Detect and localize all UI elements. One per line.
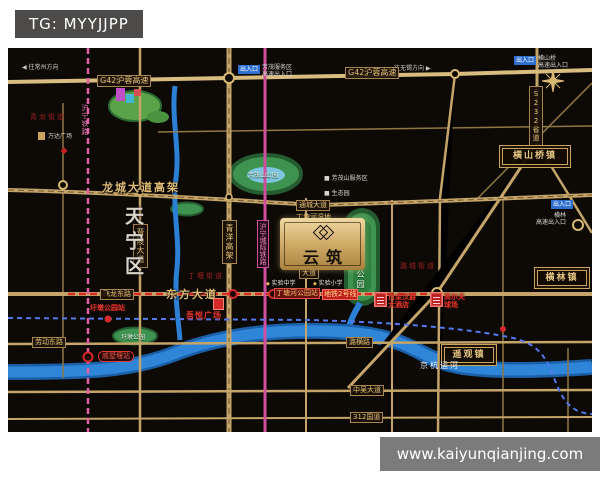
g312-label: 312国道 [350, 412, 383, 423]
poi-dot-east [500, 326, 506, 332]
junction-g42-east [451, 70, 459, 78]
wuyue-pin-icon [213, 298, 224, 310]
golf-icon [430, 292, 443, 307]
junction-west [59, 181, 67, 189]
project-name: 云筑 [280, 244, 365, 268]
wanda-plaza: 万达广场 [48, 133, 72, 140]
poi-farm: ■ 生态园 [324, 190, 350, 197]
poi-diamond-west [60, 147, 67, 154]
wuyue-plaza: 吾悦广场 [186, 310, 222, 321]
zhongwu-label: 中吴大道 [350, 385, 384, 396]
direction-west: ◀ 往常州方向 [22, 62, 59, 71]
s232-label: S232省道 [529, 86, 543, 146]
tongcheng-label: 通城大道 [296, 200, 330, 211]
g42-label-east: G42沪蓉高速 [345, 67, 399, 79]
metro-station-1 [229, 290, 237, 298]
illustration-block-2 [126, 94, 134, 103]
direction-east: 往无锡方向 ▶ [394, 63, 431, 72]
qinglong-subdistrict: 青龙街道 [30, 112, 66, 122]
town-hengshanqiao: 横山桥镇 [502, 148, 568, 165]
dongfang-label: 东方大道 [166, 286, 218, 302]
entrance-chip-b: 出入口 [551, 200, 573, 209]
school-middle: ◆ 实验中学 [266, 278, 295, 287]
square-bullet-icon: ■ [324, 190, 332, 197]
town-henglin: 横林镇 [537, 270, 587, 286]
school-primary: ◆ 实验小学 [313, 278, 342, 287]
station-qishuyan-label: 戚墅堰站 [98, 351, 134, 362]
poi-golf: 高尔夫球场 [444, 293, 465, 309]
station-dingtang-label: 丁塘河公园站 [274, 288, 320, 299]
small-green-1 [147, 111, 169, 123]
fangmao-park-label: 芳茂山公园 [248, 170, 278, 179]
huning-rail-label: 沪宁铁路 [80, 104, 90, 136]
road-g42 [8, 70, 592, 82]
poi-service-area: ■ 芳茂山服务区 [324, 175, 368, 182]
road-minor-north [158, 126, 592, 132]
road-laodong [8, 342, 592, 344]
junction-henglin [573, 220, 583, 230]
dingyan-subdistrict: 丁堰街道 [188, 271, 224, 281]
hotel-icon [374, 292, 387, 307]
entrance-c-text: 横山桥高速出入口 [538, 55, 568, 69]
website-banner: www.kaiyunqianjing.com [380, 437, 600, 471]
square-bullet-icon: ■ [324, 175, 332, 182]
tianning-district: 天宁区 [120, 206, 147, 281]
station-yudun-dot [105, 316, 112, 323]
illustration-block-3 [134, 89, 141, 96]
wanda-icon [38, 132, 45, 140]
east-arrow-icon: ▶ [424, 65, 431, 72]
entrance-a-text: 芳茂服务区高速出入口 [262, 64, 292, 78]
feilong-label: 飞龙东路 [100, 289, 134, 300]
entrance-chip-c: 出入口 [514, 56, 536, 65]
watermark-banner-top: TG: MYYJJPP [15, 10, 143, 38]
laodong-label: 劳动东路 [32, 337, 66, 348]
lucheng-subdistrict: 潞城街道 [400, 261, 436, 271]
station-yudun-label: 圩墩公园站 [90, 304, 125, 312]
project-marker: 云筑 [280, 218, 365, 270]
illustration-block-1 [116, 88, 125, 101]
junction-qingyang [226, 194, 232, 200]
road-312 [8, 417, 592, 419]
metro2-label: 地铁2号线 [322, 289, 358, 300]
g42-label-west: G42沪蓉高速 [97, 75, 151, 87]
entrance-b-text: 横林高速出入口 [536, 212, 566, 226]
entrance-chip-a: 出入口 [238, 65, 260, 74]
poi-hotel: 白金汉爵大酒店 [388, 293, 416, 309]
location-map: ◀ 往常州方向 往无锡方向 ▶ G42沪蓉高速 G42沪蓉高速 出入口 芳茂服务… [8, 48, 592, 432]
yudun-park-label: 圩墩公园 [121, 332, 145, 341]
luheng-label: 潞横路 [346, 337, 373, 348]
intercity-rail-label: 沪宁城际铁路 [257, 220, 269, 268]
canal-label: 京杭运河 [420, 360, 460, 371]
road-zhongwu [8, 390, 592, 392]
qingyang-label: 青洋高架 [222, 220, 237, 264]
station-qishuyan-dot [84, 353, 93, 362]
longcheng-label: 龙城大道高架 [102, 179, 180, 195]
junction-g42 [224, 73, 234, 83]
